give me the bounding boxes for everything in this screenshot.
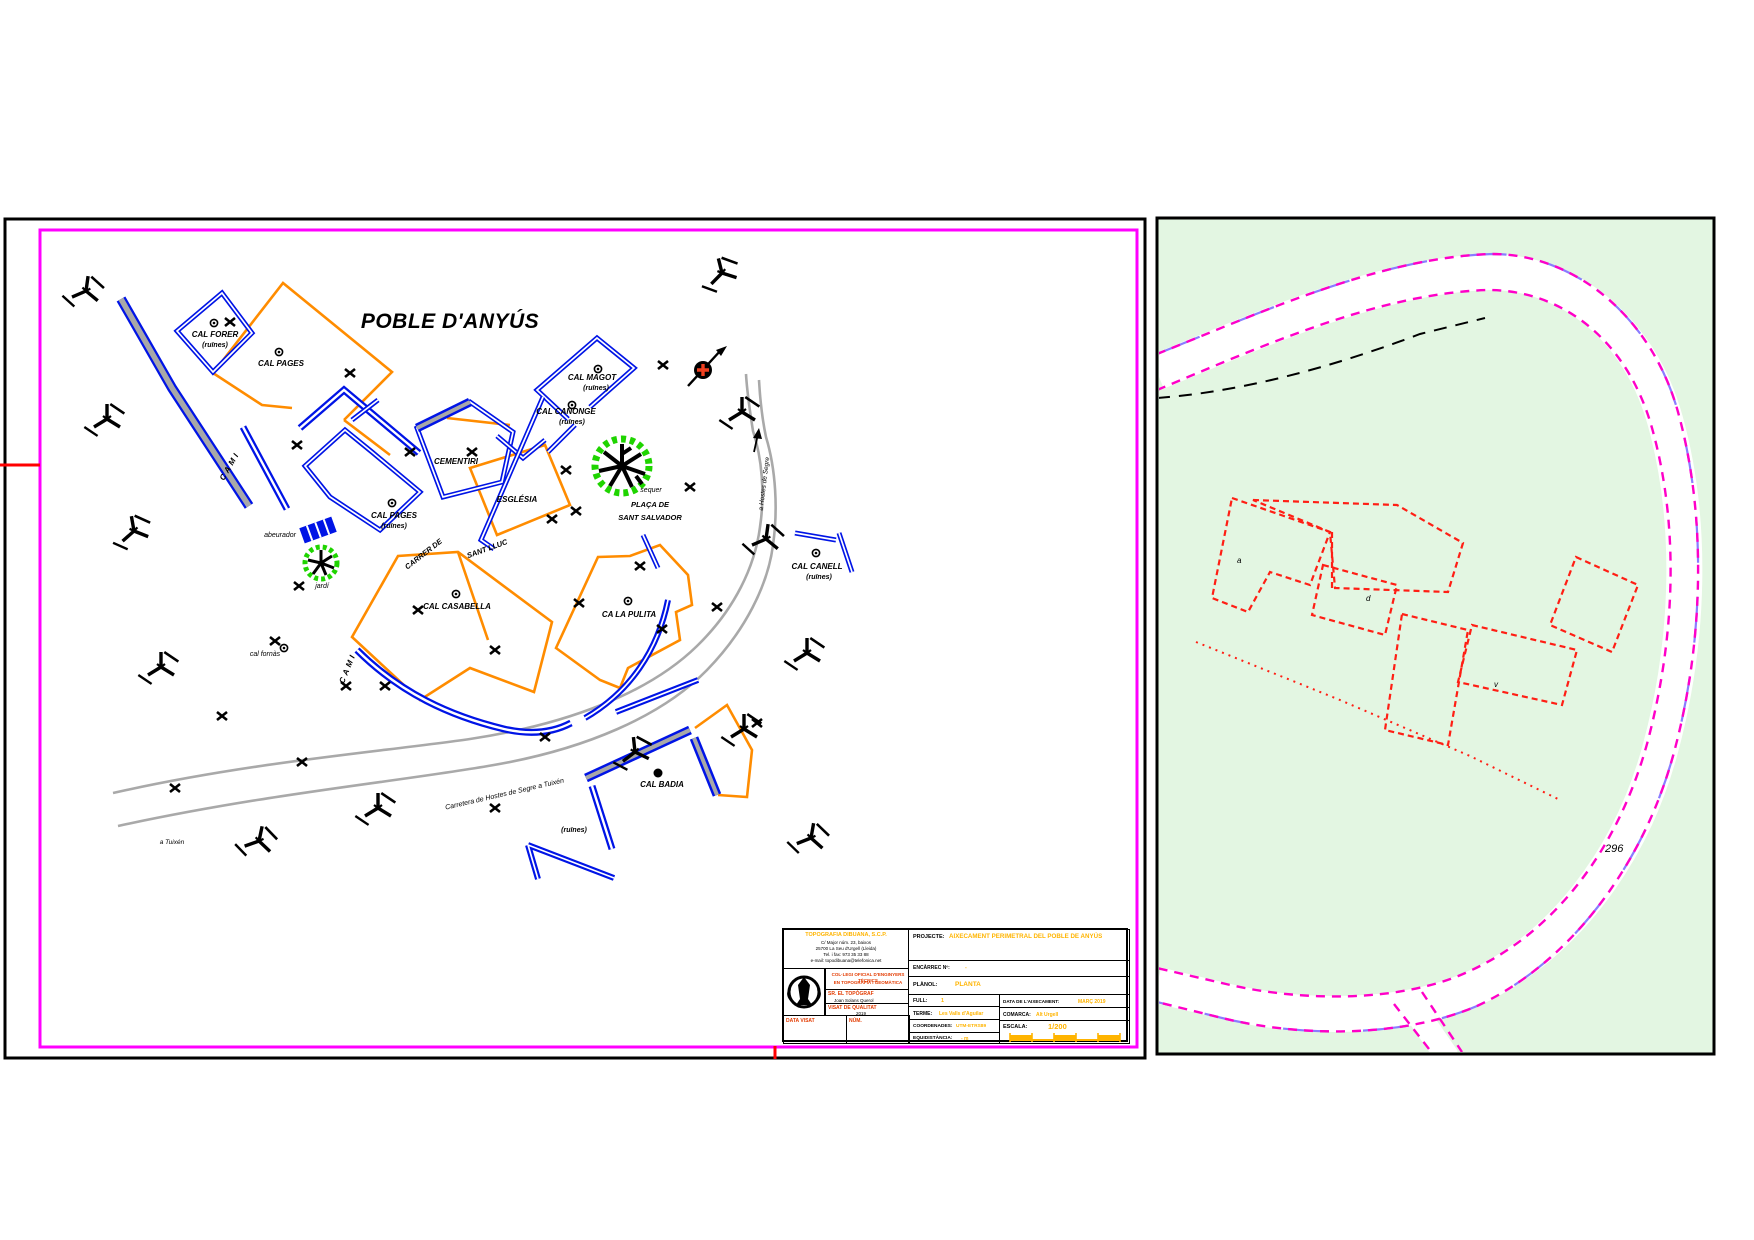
encarrec-row: ENCÀRREC Nº: - xyxy=(908,960,1130,977)
building-letter-d: d xyxy=(1366,594,1371,603)
building-letter-a: a xyxy=(1237,556,1242,565)
label-ca-la-pulida: CA LA PULITA xyxy=(602,610,657,619)
graphic-scale-bar xyxy=(1008,1033,1123,1043)
label-cal-canonge: CAL CANONGE xyxy=(536,407,596,416)
label-placa-2: SANT SALVADOR xyxy=(618,513,682,522)
label-placa-1: PLAÇA DE xyxy=(631,500,670,509)
label-cal-magot: CAL MAGOT xyxy=(568,373,617,382)
label-cal-fornas: cal fornàs xyxy=(250,651,281,658)
planol-row: PLÀNOL: PLANTA xyxy=(908,976,1130,995)
surveyor-logo-icon xyxy=(784,969,824,1015)
label-cal-forer-note: (ruïnes) xyxy=(202,342,228,349)
data-visat-cell: DATA VISAT xyxy=(783,1015,847,1044)
company-addr3: Tel. i fax: 973 35 33 88 xyxy=(784,952,908,957)
label-cal-magot-note: (ruïnes) xyxy=(583,385,609,392)
terme-row: TERME: Les Valls d'Aguilar xyxy=(908,1006,1000,1020)
num-visat-label: NÚM. xyxy=(849,1018,862,1024)
label-cal-pages-ruines: CAL PAGES xyxy=(371,511,418,520)
label-cal-canonge-note: (ruïnes) xyxy=(559,419,585,426)
label-sant-lluc: SANT LLUC xyxy=(466,537,510,560)
surveyor-cell: SR. EL TOPÒGRAF Joan Solans Querol xyxy=(825,989,909,1004)
monument-cross-icon xyxy=(688,346,727,386)
label-cementiri: CEMENTIRI xyxy=(434,457,479,466)
comarca-row: COMARCA: Alt Urgell xyxy=(999,1007,1130,1021)
escala-label: ESCALA: xyxy=(1003,1024,1027,1030)
label-cal-badia: CAL BADIA xyxy=(640,780,684,789)
label-cal-casabella: CAL CASABELLA xyxy=(423,602,491,611)
label-cami-sw: CAMI xyxy=(337,651,358,684)
label-cal-pages: CAL PAGES xyxy=(258,359,305,368)
company-addr4: e-mail: topodibuana@telefonica.net xyxy=(784,958,908,963)
comarca-label: COMARCA: xyxy=(1003,1012,1031,1018)
full-label: FULL: xyxy=(913,998,927,1004)
label-cal-badia-note: (ruïnes) xyxy=(561,827,587,834)
comarca-value: Alt Urgell xyxy=(1036,1012,1058,1018)
wall-core-line xyxy=(694,738,717,795)
wall-core-line xyxy=(528,845,614,879)
label-sequer: sequer xyxy=(640,487,662,494)
title-block: TOPOGRAFIA DIBUANA, S.C.P. C/ Major núm.… xyxy=(782,928,1128,1042)
equidistancia-label: EQUIDISTÀNCIA: xyxy=(913,1036,952,1041)
company-cell: TOPOGRAFIA DIBUANA, S.C.P. C/ Major núm.… xyxy=(783,929,909,969)
page-title: POBLE D'ANYÚS xyxy=(361,309,539,333)
equidistancia-row: EQUIDISTÀNCIA: - m xyxy=(908,1032,1000,1044)
terme-value: Les Valls d'Aguilar xyxy=(939,1011,983,1017)
company-name: TOPOGRAFIA DIBUANA, S.C.P. xyxy=(784,932,908,938)
logo-cell xyxy=(783,968,825,1016)
planol-label: PLÀNOL: xyxy=(913,982,937,988)
company-addr1: C/ Major núm. 23, baixos xyxy=(784,940,908,945)
drawing-canvas: { "left_panel": { "title": "POBLE D'ANYÚ… xyxy=(0,0,1754,1240)
visat-title: VISAT DE QUALITAT xyxy=(828,1005,877,1011)
projecte-value: AIXECAMENT PERIMETRAL DEL POBLE DE ANYÚS xyxy=(949,933,1127,940)
escala-row: ESCALA: 1/200 xyxy=(999,1020,1130,1044)
label-cal-canell: CAL CANELL xyxy=(792,562,843,571)
label-cal-canell-note: (ruïnes) xyxy=(806,574,832,581)
wall-core-line xyxy=(548,425,575,452)
wall-core-line xyxy=(417,402,470,428)
right-panel: a d v 296 xyxy=(1157,218,1714,1058)
label-jardi: jardí xyxy=(314,583,330,590)
equidistancia-value: - m xyxy=(961,1036,969,1042)
label-cal-pages-ruines-note: (ruïnes) xyxy=(381,523,407,530)
projecte-label: PROJECTE: xyxy=(913,934,944,940)
survey-stations xyxy=(60,253,831,862)
data-label: DATA DE L'AIXECAMENT: xyxy=(1003,999,1059,1004)
college-line2: EN TOPOGRAFIA I GEOMÀTICA xyxy=(827,980,909,985)
coordenades-row: COORDENADES: UTM-ETRS89 xyxy=(908,1019,1000,1033)
data-aixecament-row: DATA DE L'AIXECAMENT: MARÇ 2019 xyxy=(999,994,1130,1008)
num-visat-cell: NÚM. xyxy=(846,1015,910,1044)
escala-value: 1/200 xyxy=(1048,1022,1067,1031)
wall-core-line xyxy=(243,427,287,509)
tree-icon xyxy=(305,547,337,579)
encarrec-label: ENCÀRREC Nº: xyxy=(913,965,950,971)
label-carretera: Carretera de Hostes de Segre a Tuixén xyxy=(445,777,565,811)
label-abeurador: abeurador xyxy=(264,532,297,539)
planol-value: PLANTA xyxy=(955,981,981,988)
coordenades-label: COORDENADES: xyxy=(913,1024,952,1029)
encarrec-value: - xyxy=(965,965,967,971)
terme-label: TERME: xyxy=(913,1011,932,1017)
abeurador-trough xyxy=(299,517,336,544)
data-visat-label: DATA VISAT xyxy=(786,1018,815,1024)
data-value: MARÇ 2019 xyxy=(1078,999,1106,1005)
label-esglesia: ESGLÉSIA xyxy=(497,495,538,504)
coordenades-value: UTM-ETRS89 xyxy=(956,1024,986,1029)
surveyor-title: SR. EL TOPÒGRAF xyxy=(828,991,874,997)
label-cal-forer: CAL FORER xyxy=(192,330,239,339)
tree-icon xyxy=(595,439,649,493)
wall-core-line xyxy=(592,786,612,849)
company-addr2: 25700 La Seu d'Urgell (Lleida) xyxy=(784,946,908,951)
college-cell: COL·LEGI OFICIAL D'ENGINYERS TÈCNICS EN … xyxy=(825,968,909,990)
plan-svg: POBLE D'ANYÚS CAL FORER (ruïnes) CAL PAG… xyxy=(0,0,1754,1240)
full-value: 1 xyxy=(941,998,944,1004)
parcel-number: 296 xyxy=(1604,843,1624,855)
projecte-row: PROJECTE: AIXECAMENT PERIMETRAL DEL POBL… xyxy=(908,929,1130,961)
label-a-tuixen: a Tuixén xyxy=(160,839,185,846)
